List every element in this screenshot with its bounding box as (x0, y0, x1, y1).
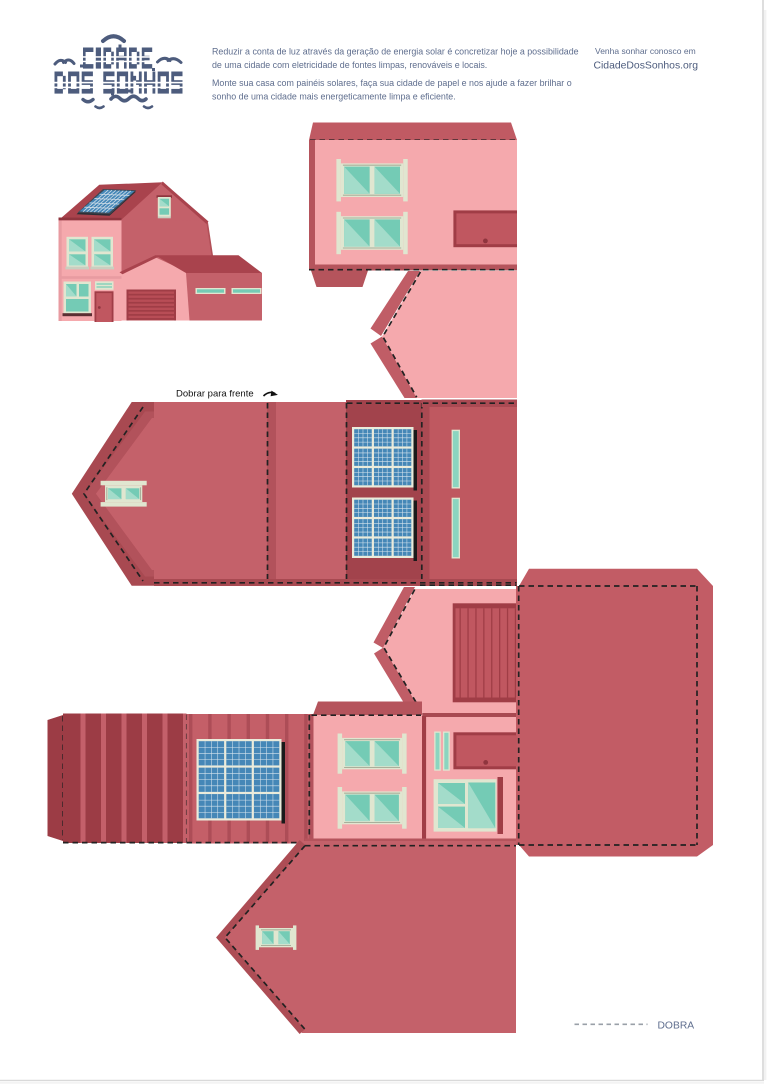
svg-text:DOBRA: DOBRA (658, 1020, 695, 1031)
svg-text:Monte sua casa com painéis sol: Monte sua casa com painéis solares, faça… (212, 78, 572, 88)
svg-text:Venha sonhar conosco em: Venha sonhar conosco em (595, 46, 696, 56)
svg-text:Reduzir a conta de luz através: Reduzir a conta de luz através da geraçã… (212, 46, 579, 56)
svg-text:Dobrar para frente: Dobrar para frente (176, 389, 254, 400)
svg-text:de uma cidade com eletricidade: de uma cidade com eletricidade de fontes… (212, 60, 487, 70)
svg-text:CidadeDosSonhos.org: CidadeDosSonhos.org (594, 61, 699, 72)
svg-text:sonho de uma cidade mais energ: sonho de uma cidade mais energeticamente… (212, 92, 456, 102)
